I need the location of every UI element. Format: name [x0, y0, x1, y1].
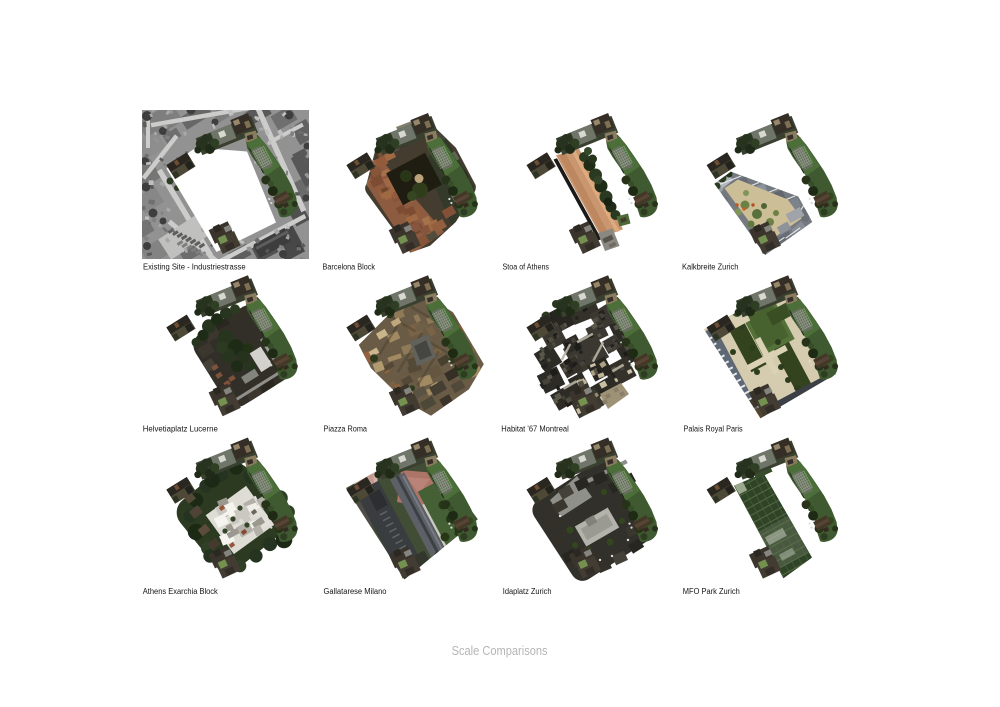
svg-text:Kalkbreite Zurich: Kalkbreite Zurich — [682, 262, 739, 271]
svg-text:Athens Exarchia Block: Athens Exarchia Block — [143, 587, 219, 596]
svg-text:Barcelona Block: Barcelona Block — [323, 262, 376, 271]
svg-text:Habitat '67 Montreal: Habitat '67 Montreal — [501, 425, 569, 434]
svg-text:Scale Comparisons: Scale Comparisons — [452, 644, 548, 658]
svg-text:Palais Royal Paris: Palais Royal Paris — [684, 425, 743, 434]
svg-text:Idaplatz Zurich: Idaplatz Zurich — [503, 587, 552, 596]
svg-text:Piazza Roma: Piazza Roma — [324, 425, 368, 434]
svg-text:Existing Site - Industriestras: Existing Site - Industriestrasse — [143, 262, 246, 271]
svg-text:Stoa of Athens: Stoa of Athens — [503, 262, 550, 271]
svg-text:Gallatarese Milano: Gallatarese Milano — [324, 587, 388, 596]
svg-text:MFO Park Zurich: MFO Park Zurich — [683, 587, 740, 596]
svg-text:Helvetiaplatz Lucerne: Helvetiaplatz Lucerne — [143, 425, 219, 434]
